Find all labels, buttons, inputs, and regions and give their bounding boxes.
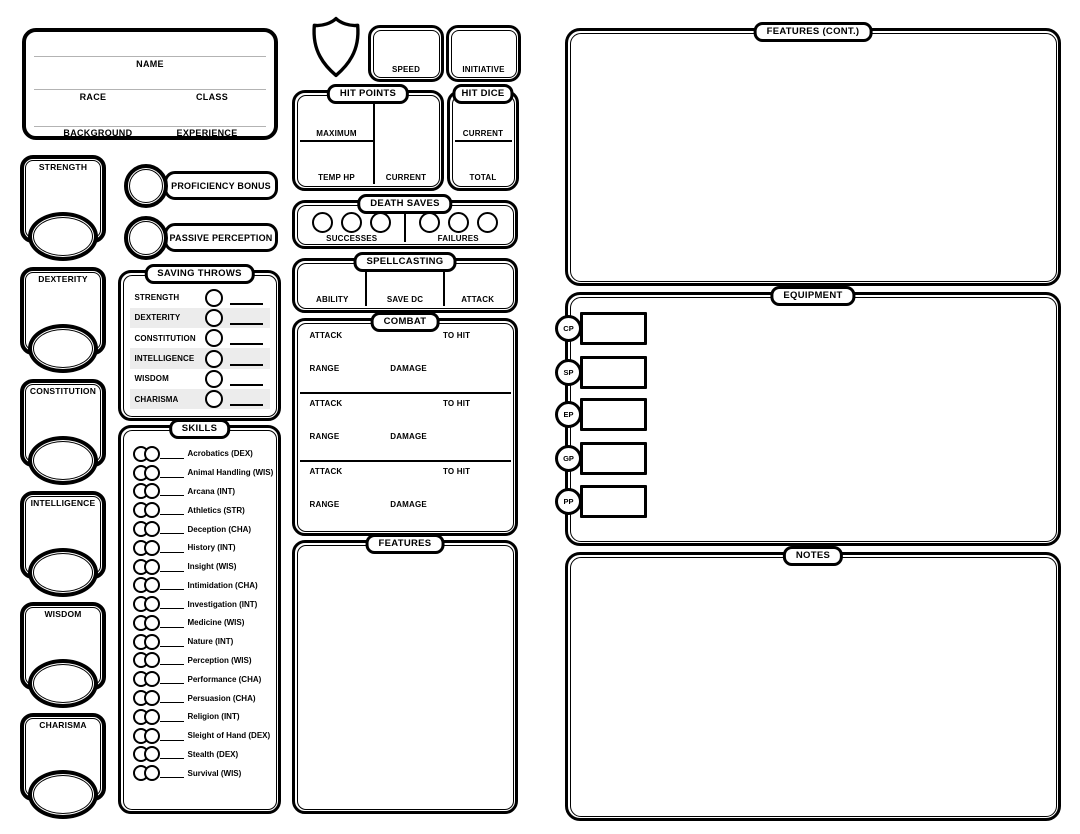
skill-write-line[interactable]	[160, 712, 184, 722]
skill-expertise-circle[interactable]	[144, 690, 160, 706]
skill-label: Athletics (STR)	[188, 506, 245, 515]
skill-write-line[interactable]	[160, 749, 184, 759]
attack-label: ATTACK	[310, 467, 343, 476]
skill-expertise-circle[interactable]	[144, 728, 160, 744]
skill-label: Religion (INT)	[188, 712, 240, 721]
successes-label: SUCCESSES	[326, 234, 377, 243]
skill-row: Perception (WIS)	[133, 651, 270, 670]
currency-ep-badge: EP	[555, 401, 582, 428]
skill-row: Animal Handling (WIS)	[133, 463, 270, 482]
combat-title: COMBAT	[371, 312, 440, 332]
background-label: BACKGROUND	[63, 128, 132, 138]
skill-label: Deception (CHA)	[188, 525, 252, 534]
saving-throw-label: CHARISMA	[135, 395, 205, 404]
hit-dice-panel: HIT DICE CURRENT TOTAL	[447, 90, 519, 191]
features-title: FEATURES	[366, 534, 445, 554]
saving-throw-proficiency-circle[interactable]	[205, 390, 223, 408]
skill-row: History (INT)	[133, 538, 270, 557]
dexterity-modifier-oval[interactable]	[28, 324, 98, 373]
passive-perception-circle[interactable]	[124, 216, 168, 260]
saving-throw-row: CONSTITUTION	[130, 328, 270, 348]
proficiency-bonus-label: PROFICIENCY BONUS	[164, 171, 278, 200]
class-label: CLASS	[196, 92, 228, 102]
skill-row: Persuasion (CHA)	[133, 689, 270, 708]
constitution-label: CONSTITUTION	[20, 386, 106, 396]
currency-pp-box[interactable]	[580, 485, 647, 518]
skill-expertise-circle[interactable]	[144, 540, 160, 556]
skill-row: Arcana (INT)	[133, 482, 270, 501]
skill-write-line[interactable]	[160, 486, 184, 496]
initiative-box[interactable]: INITIATIVE	[446, 25, 521, 82]
name-label: NAME	[136, 59, 164, 69]
skill-expertise-circle[interactable]	[144, 577, 160, 593]
damage-label: DAMAGE	[390, 364, 427, 373]
saving-throw-write-line[interactable]	[230, 331, 263, 345]
armor-class-shield-icon[interactable]	[310, 16, 362, 78]
death-save-success-circle[interactable]	[312, 212, 333, 233]
speed-label: SPEED	[374, 65, 439, 74]
skill-write-line[interactable]	[160, 524, 184, 534]
features-panel: FEATURES	[292, 540, 518, 814]
saving-throw-row: CHARISMA	[130, 389, 270, 409]
notes-panel: NOTES	[565, 552, 1061, 821]
hit-points-maximum-label: MAXIMUM	[300, 129, 374, 138]
name-field[interactable]	[26, 32, 274, 56]
combat-panel: COMBAT ATTACK TO HIT RANGE DAMAGE ATTACK…	[292, 318, 518, 536]
skill-row: Sleight of Hand (DEX)	[133, 726, 270, 745]
saving-throws-inner: STRENGTH DEXTERITY CONSTITUTION INTELLIG…	[123, 275, 277, 417]
notes-field[interactable]	[570, 557, 1057, 817]
hit-dice-title: HIT DICE	[452, 84, 513, 104]
range-label: RANGE	[310, 364, 340, 373]
to-hit-label: TO HIT	[443, 331, 470, 340]
skill-expertise-circle[interactable]	[144, 615, 160, 631]
skill-expertise-circle[interactable]	[144, 596, 160, 612]
intelligence-label: INTELLIGENCE	[20, 498, 106, 508]
saving-throw-proficiency-circle[interactable]	[205, 309, 223, 327]
skill-row: Insight (WIS)	[133, 557, 270, 576]
ability-dexterity: DEXTERITY	[20, 267, 106, 369]
spell-attack-label: ATTACK	[445, 295, 511, 304]
strength-modifier-oval[interactable]	[28, 212, 98, 261]
saving-throw-label: DEXTERITY	[135, 313, 205, 322]
ability-intelligence: INTELLIGENCE	[20, 491, 106, 593]
hit-dice-current-field[interactable]: CURRENT	[455, 98, 512, 142]
combat-attack-row[interactable]: ATTACK TO HIT RANGE DAMAGE	[300, 326, 511, 394]
saving-throw-label: INTELLIGENCE	[135, 354, 205, 363]
saving-throw-proficiency-circle[interactable]	[205, 350, 223, 368]
skill-write-line[interactable]	[160, 562, 184, 572]
spellcasting-title: SPELLCASTING	[354, 252, 457, 272]
skill-label: Performance (CHA)	[188, 675, 262, 684]
attack-label: ATTACK	[310, 399, 343, 408]
passive-perception-label: PASSIVE PERCEPTION	[164, 223, 278, 252]
death-save-success-circle[interactable]	[370, 212, 391, 233]
spell-attack-field[interactable]: ATTACK	[445, 266, 511, 306]
skill-expertise-circle[interactable]	[144, 765, 160, 781]
saving-throw-label: CONSTITUTION	[135, 334, 205, 343]
skill-row: Athletics (STR)	[133, 501, 270, 520]
skill-label: Stealth (DEX)	[188, 750, 239, 759]
skill-row: Acrobatics (DEX)	[133, 445, 270, 464]
saving-throw-row: STRENGTH	[130, 288, 270, 308]
failures-label: FAILURES	[438, 234, 479, 243]
death-save-failure-circle[interactable]	[419, 212, 440, 233]
ability-strength: STRENGTH	[20, 155, 106, 257]
saving-throw-write-line[interactable]	[230, 311, 263, 325]
ability-charisma: CHARISMA	[20, 713, 106, 815]
saving-throw-row: WISDOM	[130, 369, 270, 389]
skill-row: Performance (CHA)	[133, 670, 270, 689]
equipment-title: EQUIPMENT	[770, 286, 855, 306]
saving-throws-panel: SAVING THROWS STRENGTH DEXTERITY CONSTIT…	[118, 270, 281, 421]
currency-ep-box[interactable]	[580, 398, 647, 431]
skill-row: Stealth (DEX)	[133, 745, 270, 764]
hit-points-current-field[interactable]: CURRENT	[375, 98, 436, 184]
spellcasting-ability-label: ABILITY	[300, 295, 366, 304]
saving-throw-write-line[interactable]	[230, 352, 263, 366]
damage-label: DAMAGE	[390, 432, 427, 441]
skills-title: SKILLS	[169, 419, 231, 439]
skill-expertise-circle[interactable]	[144, 521, 160, 537]
ability-constitution: CONSTITUTION	[20, 379, 106, 481]
intelligence-modifier-oval[interactable]	[28, 548, 98, 597]
strength-label: STRENGTH	[20, 162, 106, 172]
spell-save-dc-field[interactable]: SAVE DC	[365, 268, 445, 306]
spell-save-dc-label: SAVE DC	[367, 295, 443, 304]
skill-expertise-circle[interactable]	[144, 709, 160, 725]
skill-write-line[interactable]	[160, 618, 184, 628]
skill-label: Animal Handling (WIS)	[188, 468, 274, 477]
saving-throw-proficiency-circle[interactable]	[205, 329, 223, 347]
background-experience-line	[34, 126, 266, 127]
spellcasting-ability-field[interactable]: ABILITY	[300, 266, 366, 306]
death-save-success-circle[interactable]	[341, 212, 362, 233]
to-hit-label: TO HIT	[443, 467, 470, 476]
hit-dice-current-label: CURRENT	[455, 129, 512, 138]
character-info-box: NAME RACE CLASS BACKGROUND EXPERIENCE	[22, 28, 278, 140]
skill-label: History (INT)	[188, 543, 236, 552]
skill-expertise-circle[interactable]	[144, 671, 160, 687]
skill-expertise-circle[interactable]	[144, 746, 160, 762]
equipment-panel: EQUIPMENT CP SP EP GP PP	[565, 292, 1061, 546]
skill-label: Sleight of Hand (DEX)	[188, 731, 271, 740]
skill-row: Nature (INT)	[133, 632, 270, 651]
combat-attack-row[interactable]: ATTACK TO HIT RANGE DAMAGE	[300, 462, 511, 528]
features-field[interactable]	[297, 545, 514, 810]
hit-dice-total-label: TOTAL	[455, 173, 512, 182]
skill-expertise-circle[interactable]	[144, 483, 160, 499]
death-save-failure-circle[interactable]	[477, 212, 498, 233]
hit-points-temp-field[interactable]: TEMP HP	[300, 142, 374, 184]
currency-sp-box[interactable]	[580, 356, 647, 389]
charisma-modifier-oval[interactable]	[28, 770, 98, 819]
currency-cp-badge: CP	[555, 315, 582, 342]
skill-expertise-circle[interactable]	[144, 465, 160, 481]
skill-write-line[interactable]	[160, 731, 184, 741]
skill-row: Intimidation (CHA)	[133, 576, 270, 595]
currency-cp-box[interactable]	[580, 312, 647, 345]
saving-throw-proficiency-circle[interactable]	[205, 370, 223, 388]
experience-label: EXPERIENCE	[177, 128, 238, 138]
spellcasting-panel: SPELLCASTING ABILITY SAVE DC ATTACK	[292, 258, 518, 313]
race-class-fields[interactable]	[26, 70, 274, 89]
saving-throw-write-line[interactable]	[230, 291, 263, 305]
damage-label: DAMAGE	[390, 500, 427, 509]
wisdom-label: WISDOM	[20, 609, 106, 619]
constitution-modifier-oval[interactable]	[28, 436, 98, 485]
range-label: RANGE	[310, 432, 340, 441]
skill-label: Arcana (INT)	[188, 487, 236, 496]
saving-throw-row: INTELLIGENCE	[130, 348, 270, 368]
wisdom-modifier-oval[interactable]	[28, 659, 98, 708]
skill-label: Acrobatics (DEX)	[188, 449, 253, 458]
attack-label: ATTACK	[310, 331, 343, 340]
race-label: RACE	[80, 92, 107, 102]
death-save-failure-circle[interactable]	[448, 212, 469, 233]
character-sheet: NAME RACE CLASS BACKGROUND EXPERIENCE ST…	[0, 0, 1080, 834]
range-label: RANGE	[310, 500, 340, 509]
saving-throw-proficiency-circle[interactable]	[205, 289, 223, 307]
initiative-label: INITIATIVE	[452, 65, 516, 74]
hit-points-current-label: CURRENT	[375, 173, 436, 182]
features-cont-panel: FEATURES (CONT.)	[565, 28, 1061, 286]
notes-title: NOTES	[783, 546, 843, 566]
skill-write-line[interactable]	[160, 674, 184, 684]
currency-sp-badge: SP	[555, 359, 582, 386]
background-experience-fields[interactable]	[26, 108, 274, 126]
features-cont-title: FEATURES (CONT.)	[754, 22, 873, 42]
skill-row: Deception (CHA)	[133, 520, 270, 539]
skill-write-line[interactable]	[160, 655, 184, 665]
skill-label: Intimidation (CHA)	[188, 581, 258, 590]
saving-throw-write-line[interactable]	[230, 372, 263, 386]
skill-expertise-circle[interactable]	[144, 652, 160, 668]
skill-write-line[interactable]	[160, 449, 184, 459]
skill-write-line[interactable]	[160, 637, 184, 647]
skill-expertise-circle[interactable]	[144, 446, 160, 462]
saving-throw-row: DEXTERITY	[130, 308, 270, 328]
hit-points-maximum-field[interactable]: MAXIMUM	[300, 98, 374, 142]
skill-label: Persuasion (CHA)	[188, 694, 256, 703]
skill-row: Medicine (WIS)	[133, 614, 270, 633]
skill-label: Investigation (INT)	[188, 600, 258, 609]
saving-throw-label: WISDOM	[135, 374, 205, 383]
skill-write-line[interactable]	[160, 543, 184, 553]
skill-label: Insight (WIS)	[188, 562, 237, 571]
death-saves-title: DEATH SAVES	[357, 194, 452, 214]
saving-throw-label: STRENGTH	[135, 293, 205, 302]
skill-write-line[interactable]	[160, 693, 184, 703]
skill-write-line[interactable]	[160, 768, 184, 778]
ability-wisdom: WISDOM	[20, 602, 106, 704]
currency-pp-badge: PP	[555, 488, 582, 515]
skill-label: Perception (WIS)	[188, 656, 252, 665]
skills-inner: Acrobatics (DEX) Animal Handling (WIS) A…	[123, 430, 277, 810]
to-hit-label: TO HIT	[443, 399, 470, 408]
speed-box[interactable]: SPEED	[368, 25, 444, 82]
skill-write-line[interactable]	[160, 505, 184, 515]
proficiency-bonus-circle[interactable]	[124, 164, 168, 208]
name-line	[34, 56, 266, 57]
skill-write-line[interactable]	[160, 468, 184, 478]
skill-label: Nature (INT)	[188, 637, 234, 646]
hit-points-temp-label: TEMP HP	[300, 173, 374, 182]
skill-write-line[interactable]	[160, 599, 184, 609]
saving-throws-title: SAVING THROWS	[144, 264, 254, 284]
currency-gp-box[interactable]	[580, 442, 647, 475]
skill-row: Survival (WIS)	[133, 764, 270, 783]
death-saves-panel: DEATH SAVES SUCCESSES	[292, 200, 518, 249]
skill-expertise-circle[interactable]	[144, 502, 160, 518]
skill-label: Survival (WIS)	[188, 769, 242, 778]
features-cont-field[interactable]	[570, 33, 1057, 282]
skill-write-line[interactable]	[160, 580, 184, 590]
skill-label: Medicine (WIS)	[188, 618, 245, 627]
race-class-line	[34, 89, 266, 90]
hit-points-title: HIT POINTS	[327, 84, 409, 104]
currency-gp-badge: GP	[555, 445, 582, 472]
passive-perception-row: PASSIVE PERCEPTION	[124, 216, 278, 260]
skill-row: Investigation (INT)	[133, 595, 270, 614]
proficiency-bonus-row: PROFICIENCY BONUS	[124, 164, 278, 208]
hit-points-panel: HIT POINTS MAXIMUM TEMP HP CURRENT	[292, 90, 444, 191]
hit-dice-total-field[interactable]: TOTAL	[455, 142, 512, 184]
combat-attack-row[interactable]: ATTACK TO HIT RANGE DAMAGE	[300, 394, 511, 462]
charisma-label: CHARISMA	[20, 720, 106, 730]
skill-row: Religion (INT)	[133, 707, 270, 726]
skill-expertise-circle[interactable]	[144, 559, 160, 575]
saving-throw-write-line[interactable]	[230, 392, 263, 406]
skills-panel: SKILLS Acrobatics (DEX) Animal Handling …	[118, 425, 281, 814]
skill-expertise-circle[interactable]	[144, 634, 160, 650]
dexterity-label: DEXTERITY	[20, 274, 106, 284]
